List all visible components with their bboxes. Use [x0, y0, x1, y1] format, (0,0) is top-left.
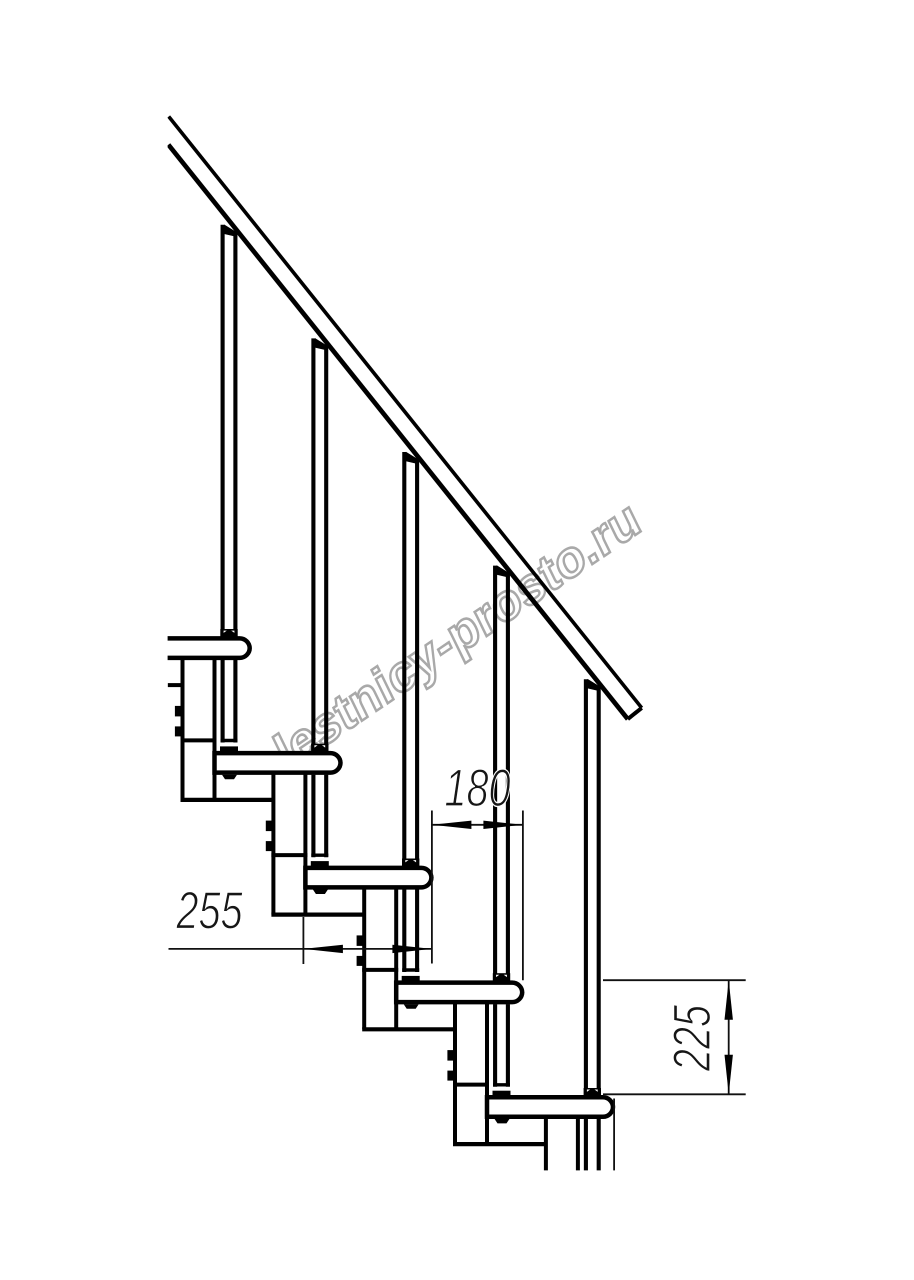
svg-text:180: 180 — [444, 758, 510, 817]
svg-text:225: 225 — [662, 1004, 721, 1072]
svg-text:255: 255 — [175, 881, 243, 940]
